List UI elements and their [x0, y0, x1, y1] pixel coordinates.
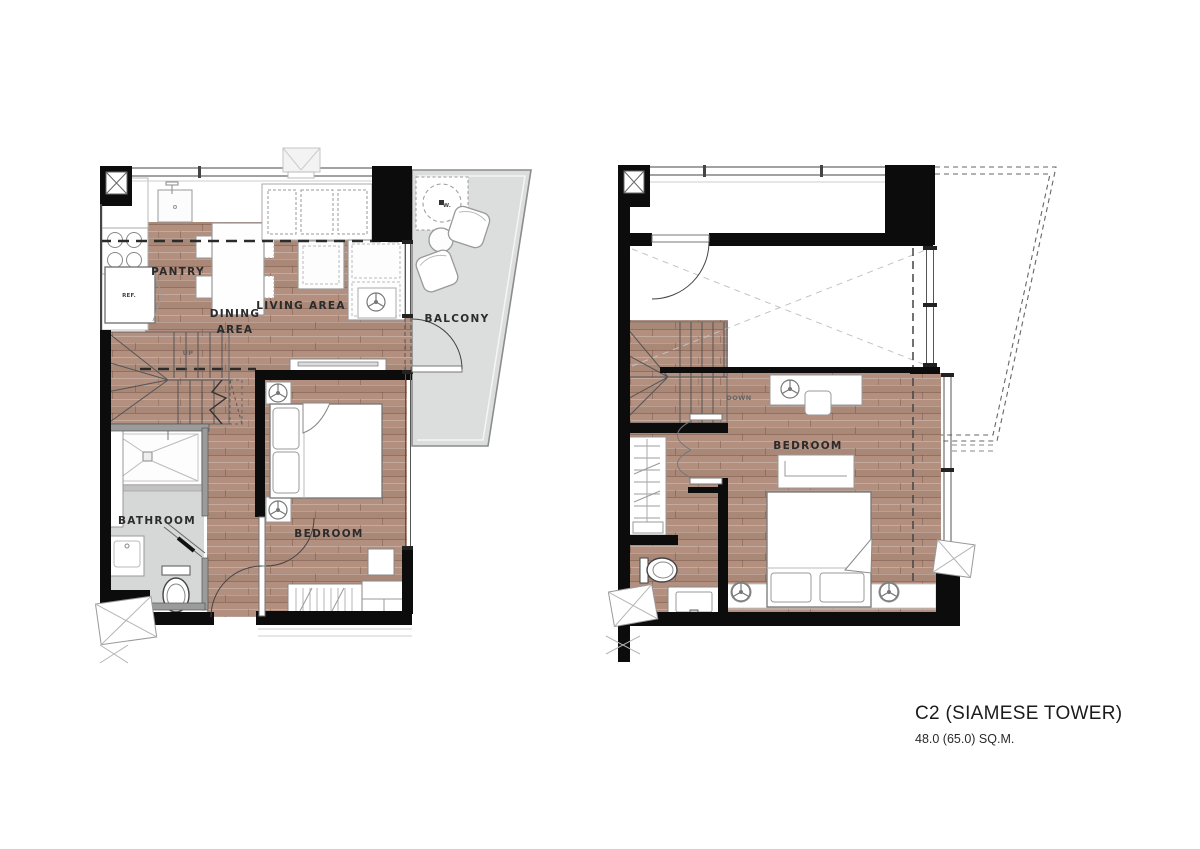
toilet-icon [640, 558, 677, 583]
condenser-unit-icon [608, 584, 657, 626]
room-label-dining-2: AREA [217, 324, 254, 336]
floorplan-page: { "title_block": { "unit_name": "C2 (SIA… [0, 0, 1200, 849]
ground-mark [100, 645, 128, 663]
bed-icon [767, 492, 872, 607]
bed-icon [270, 403, 382, 498]
balcony-area [412, 170, 531, 446]
balcony-outline-dashed [935, 167, 1056, 451]
room-label-bathroom: BATHROOM [118, 515, 196, 527]
ac-unit-icon [283, 148, 320, 178]
washer-label: W. [443, 203, 451, 209]
second-floor-plan [606, 165, 1056, 662]
room-label-balcony: BALCONY [425, 313, 490, 325]
bathroom-sink-icon [110, 536, 144, 576]
fridge-label: REF. [122, 293, 136, 299]
room-label-dining-1: DINING [210, 308, 261, 320]
shower-icon [112, 430, 202, 485]
stairs-down-label: DOWN [726, 394, 751, 402]
room-label-bedroom-f2: BEDROOM [773, 440, 842, 452]
storage-cabinet [262, 184, 372, 240]
unit-area: 48.0 (65.0) SQ.M. [915, 732, 1122, 746]
closet-icon [628, 437, 666, 535]
room-label-pantry: PANTRY [151, 266, 205, 278]
first-floor-plan [95, 148, 531, 663]
condenser-unit-icon [95, 596, 156, 644]
condenser-unit-icon [933, 540, 975, 578]
unit-name: C2 (SIAMESE TOWER) [915, 703, 1122, 725]
stairs-up-label: UP [183, 349, 194, 357]
room-label-bedroom-f1: BEDROOM [294, 528, 363, 540]
tv-console [778, 455, 854, 488]
title-block: C2 (SIAMESE TOWER) 48.0 (65.0) SQ.M. [915, 703, 1122, 746]
room-label-living: LIVING AREA [256, 300, 346, 312]
